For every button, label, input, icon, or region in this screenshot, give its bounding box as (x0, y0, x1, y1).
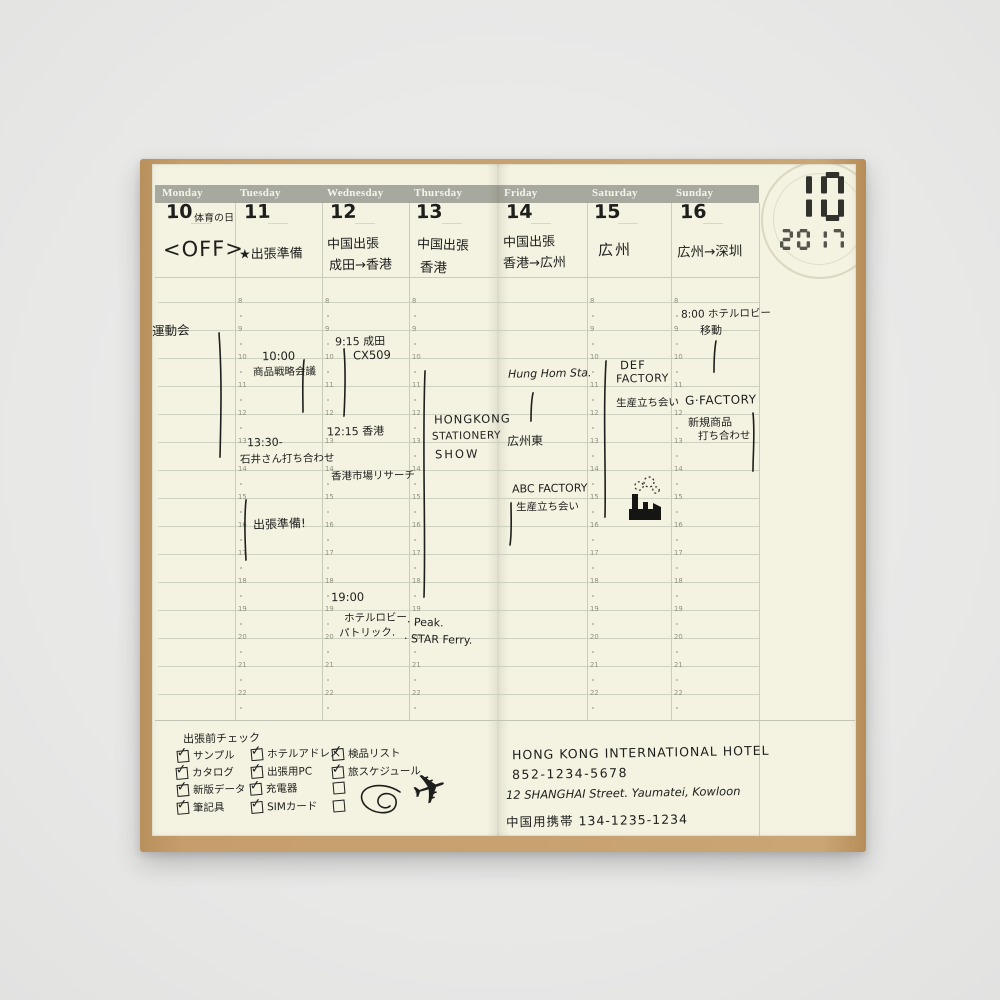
half-hour-dot (676, 427, 678, 429)
hour-line (158, 498, 759, 499)
half-hour-dot (676, 455, 678, 457)
half-hour-dot (592, 651, 594, 653)
checklist-item: 出張用PC (251, 763, 312, 779)
half-hour-dot (676, 679, 678, 681)
hour-label: 21 (238, 661, 247, 669)
half-hour-dot (327, 511, 329, 513)
half-hour-dot (592, 371, 594, 373)
half-hour-dot (240, 371, 242, 373)
checkbox-icon (176, 766, 189, 779)
half-hour-dot (240, 539, 242, 541)
hour-label: 18 (325, 577, 334, 585)
date-sunday: 16 (680, 201, 707, 223)
note-fri-gzeast: 広州東 (507, 432, 543, 450)
half-hour-dot (414, 651, 416, 653)
note-wed-market: 香港市場リサーチ (331, 467, 415, 483)
half-hour-dot (327, 595, 329, 597)
hour-label: 16 (412, 521, 421, 529)
note-sun-move: 移動 (700, 322, 722, 338)
half-hour-dot (414, 343, 416, 345)
hour-label: 8 (325, 297, 329, 305)
bottom-section-divider (155, 720, 855, 721)
half-hour-dot (414, 511, 416, 513)
day-header-sunday: Sunday (676, 187, 713, 199)
half-hour-dot (327, 707, 329, 709)
hour-label: 11 (325, 381, 334, 389)
half-hour-dot (327, 679, 329, 681)
half-hour-dot (414, 595, 416, 597)
half-hour-dot (327, 651, 329, 653)
note-sat-factory: FACTORY (616, 372, 669, 386)
hour-label: 21 (412, 661, 421, 669)
title-thursday-1: 中国出張 (417, 233, 470, 254)
half-hour-dot (592, 315, 594, 317)
half-hour-dot (676, 511, 678, 513)
half-hour-dot (592, 399, 594, 401)
hour-label: 22 (590, 689, 599, 697)
note-wed-1900: 19:00 (331, 590, 364, 605)
note-thu-peak: · Peak. (407, 616, 444, 630)
hour-label: 18 (590, 577, 599, 585)
hour-label: 9 (590, 325, 594, 333)
hour-label: 21 (325, 661, 334, 669)
half-hour-dot (240, 679, 242, 681)
hour-label: 12 (674, 409, 683, 417)
checklist-item: カタログ (176, 764, 234, 780)
half-hour-dot (676, 539, 678, 541)
hour-label: 16 (674, 521, 683, 529)
hour-label: 16 (238, 521, 247, 529)
date-underline (703, 223, 723, 224)
hour-label: 19 (674, 605, 683, 613)
half-hour-dot (676, 343, 678, 345)
checkbox-icon (250, 782, 263, 795)
hour-line (158, 554, 759, 555)
date-tuesday: 11 (244, 201, 271, 223)
half-hour-dot (414, 371, 416, 373)
checkbox-icon (333, 782, 346, 795)
hour-label: 10 (590, 353, 599, 361)
half-hour-dot (676, 483, 678, 485)
note-fri-abcfactory: ABC FACTORY (512, 481, 588, 495)
half-hour-dot (240, 623, 242, 625)
hour-label: 17 (238, 549, 247, 557)
half-hour-dot (592, 595, 594, 597)
hour-label: 17 (590, 549, 599, 557)
date-underline (531, 223, 551, 224)
hour-label: 16 (590, 521, 599, 529)
title-friday-2: 香港→広州 (503, 251, 566, 271)
checklist-item (333, 782, 349, 794)
hour-line (158, 582, 759, 583)
half-hour-dot (414, 399, 416, 401)
note-wed-hongkong: 12:15 香港 (327, 423, 384, 440)
hour-label: 12 (325, 409, 334, 417)
hour-label: 21 (674, 661, 683, 669)
date-note-monday: 体育の日 (194, 209, 234, 225)
half-hour-dot (327, 539, 329, 541)
hour-line (158, 666, 759, 667)
hour-label: 9 (325, 325, 329, 333)
half-hour-dot (327, 567, 329, 569)
title-sunday: 広州→深圳 (677, 239, 743, 260)
hour-label: 10 (325, 353, 334, 361)
hour-label: 13 (674, 437, 683, 445)
half-hour-dot (240, 315, 242, 317)
half-hour-dot (414, 483, 416, 485)
date-underline (268, 223, 288, 224)
column-divider (235, 203, 236, 720)
hour-label: 22 (674, 689, 683, 697)
title-friday-1: 中国出張 (503, 231, 555, 251)
hour-label: 12 (412, 409, 421, 417)
china-mobile-number: 中国用携帯 134-1235-1234 (506, 808, 688, 830)
title-saturday: 広州 (598, 239, 632, 261)
note-sun-gfactory: G·FACTORY (685, 392, 757, 407)
hour-label: 19 (590, 605, 599, 613)
note-wed-patrick: パトリック. (339, 625, 395, 641)
note-thu-starferry: · STAR Ferry. (404, 632, 473, 647)
title-thursday-2: 香港 (420, 256, 448, 277)
half-hour-dot (414, 567, 416, 569)
note-tue-ishii: 石井さん打ち合わせ (240, 450, 335, 467)
half-hour-dot (414, 427, 416, 429)
half-hour-dot (240, 567, 242, 569)
note-sun-0800: 8:00 ホテルロビー (681, 305, 771, 322)
note-wed-lobby: ホテルロビー (344, 609, 407, 625)
date-underline (355, 223, 375, 224)
half-hour-dot (592, 427, 594, 429)
half-hour-dot (414, 707, 416, 709)
note-thu-show-3: SHOW (435, 447, 480, 462)
half-hour-dot (240, 651, 242, 653)
note-tue-prep: 出張準備! (253, 514, 306, 533)
hour-label: 20 (238, 633, 247, 641)
hour-label: 8 (412, 297, 416, 305)
note-fri-hunghom: Hung Hom Sta. (508, 366, 592, 380)
half-hour-dot (327, 483, 329, 485)
date-friday: 14 (506, 201, 533, 223)
hour-label: 11 (412, 381, 421, 389)
hour-label: 22 (412, 689, 421, 697)
hour-label: 20 (590, 633, 599, 641)
half-hour-dot (676, 623, 678, 625)
hour-label: 10 (674, 353, 683, 361)
note-thu-show-2: STATIONERY (432, 429, 501, 442)
hour-label: 8 (238, 297, 242, 305)
hour-label: 15 (590, 493, 599, 501)
checkbox-icon (177, 783, 190, 796)
hour-label: 9 (674, 325, 678, 333)
half-hour-dot (592, 623, 594, 625)
date-thursday: 13 (416, 201, 443, 223)
date-monday: 10 (166, 201, 193, 223)
half-hour-dot (414, 315, 416, 317)
hour-label: 17 (325, 549, 334, 557)
half-hour-dot (592, 343, 594, 345)
hour-label: 15 (412, 493, 421, 501)
hour-label: 12 (238, 409, 247, 417)
column-divider (671, 203, 672, 720)
margin-divider (759, 203, 760, 836)
checkbox-icon (251, 748, 264, 761)
half-hour-dot (592, 707, 594, 709)
hour-line (158, 470, 759, 471)
half-hour-dot (414, 679, 416, 681)
day-header-tuesday: Tuesday (240, 187, 281, 199)
checklist-item: ホテルアドレス (251, 745, 341, 762)
note-tue-meeting: 商品戦略会議 (253, 363, 316, 379)
hour-label: 9 (412, 325, 416, 333)
half-hour-dot (327, 343, 329, 345)
hour-label: 21 (590, 661, 599, 669)
checkbox-icon (177, 749, 190, 762)
checkbox-icon (251, 800, 264, 813)
half-hour-dot (240, 427, 242, 429)
checklist-item: SIMカード (251, 798, 318, 814)
hour-label: 17 (674, 549, 683, 557)
half-hour-dot (327, 399, 329, 401)
checkbox-icon (332, 766, 345, 779)
hour-label: 18 (238, 577, 247, 585)
half-hour-dot (592, 679, 594, 681)
hour-label: 20 (325, 633, 334, 641)
day-header-saturday: Saturday (592, 187, 638, 199)
hour-label: 17 (412, 549, 421, 557)
hour-label: 19 (238, 605, 247, 613)
hour-label: 19 (412, 605, 421, 613)
half-hour-dot (676, 371, 678, 373)
hour-label: 14 (674, 465, 683, 473)
hour-label: 18 (412, 577, 421, 585)
hour-line (158, 526, 759, 527)
title-row-divider (155, 277, 759, 278)
note-fri-inspection: 生産立ち会い (516, 498, 579, 514)
half-hour-dot (327, 371, 329, 373)
hour-label: 18 (674, 577, 683, 585)
date-underline (618, 223, 638, 224)
day-header-wednesday: Wednesday (327, 187, 384, 199)
half-hour-dot (414, 539, 416, 541)
half-hour-dot (676, 707, 678, 709)
title-wednesday-1: 中国出張 (327, 233, 379, 253)
hour-label: 12 (590, 409, 599, 417)
hour-line (158, 694, 759, 695)
checklist-title: 出張前チェック (183, 729, 260, 746)
hour-label: 10 (412, 353, 421, 361)
day-header-friday: Friday (504, 187, 538, 199)
half-hour-dot (240, 595, 242, 597)
note-thu-show-1: HONGKONG (434, 411, 511, 426)
checkbox-icon (251, 765, 264, 778)
hour-label: 22 (325, 689, 334, 697)
checklist-item (333, 800, 349, 812)
checklist-item: 充電器 (250, 781, 298, 797)
hour-label: 10 (238, 353, 247, 361)
checklist-item: 新版データ (177, 781, 246, 797)
hour-label: 11 (238, 381, 247, 389)
half-hour-dot (676, 651, 678, 653)
half-hour-dot (676, 315, 678, 317)
note-sun-meeting: 打ち合わせ (698, 428, 751, 444)
hour-label: 20 (674, 633, 683, 641)
note-tue-1000: 10:00 (262, 349, 295, 364)
half-hour-dot (414, 455, 416, 457)
hour-label: 22 (238, 689, 247, 697)
half-hour-dot (592, 567, 594, 569)
hour-line (158, 358, 759, 359)
checklist-item: 筆記具 (177, 800, 225, 816)
note-sat-inspection: 生産立ち会い (616, 394, 679, 410)
hour-line (158, 610, 759, 611)
half-hour-dot (592, 511, 594, 513)
day-header-thursday: Thursday (414, 187, 462, 199)
title-monday: <OFF> (163, 236, 244, 261)
half-hour-dot (327, 315, 329, 317)
hour-label: 19 (325, 605, 334, 613)
half-hour-dot (676, 595, 678, 597)
note-monday-sports-day: 運動会 (152, 319, 190, 339)
date-underline (442, 223, 462, 224)
half-hour-dot (240, 707, 242, 709)
hour-line (158, 330, 759, 331)
half-hour-dot (592, 483, 594, 485)
hour-line (158, 386, 759, 387)
hour-label: 15 (325, 493, 334, 501)
half-hour-dot (592, 539, 594, 541)
month-display (789, 172, 853, 225)
half-hour-dot (240, 511, 242, 513)
checkbox-icon (332, 747, 345, 760)
hour-label: 13 (590, 437, 599, 445)
hour-label: 13 (238, 437, 247, 445)
hour-label: 15 (674, 493, 683, 501)
note-sat-def: DEF (620, 358, 646, 372)
title-wednesday-2: 成田→香港 (329, 253, 392, 273)
checkbox-icon (177, 801, 190, 814)
note-tue-1330: 13:30- (247, 436, 283, 450)
date-saturday: 15 (594, 201, 621, 223)
checklist-item: 検品リスト (332, 745, 401, 761)
half-hour-dot (240, 399, 242, 401)
half-hour-dot (592, 455, 594, 457)
hour-label: 11 (674, 381, 683, 389)
hour-label: 8 (674, 297, 678, 305)
hotel-phone: 852-1234-5678 (512, 765, 628, 782)
date-wednesday: 12 (330, 201, 357, 223)
day-header-monday: Monday (162, 187, 203, 199)
checkbox-icon (333, 800, 346, 813)
hour-label: 13 (412, 437, 421, 445)
title-tuesday: ★出張準備 (239, 242, 303, 262)
hour-label: 9 (238, 325, 242, 333)
hour-label: 15 (238, 493, 247, 501)
year-display (780, 229, 848, 254)
hour-line (158, 302, 759, 303)
note-wed-cx509: CX509 (353, 348, 391, 363)
planner-photo: Monday Tuesday Wednesday Thursday Friday… (0, 0, 1000, 1000)
hour-label: 14 (590, 465, 599, 473)
hour-label: 8 (590, 297, 594, 305)
half-hour-dot (240, 483, 242, 485)
half-hour-dot (327, 623, 329, 625)
half-hour-dot (240, 343, 242, 345)
hour-label: 11 (590, 381, 599, 389)
half-hour-dot (676, 567, 678, 569)
column-divider (587, 203, 588, 720)
hour-label: 16 (325, 521, 334, 529)
